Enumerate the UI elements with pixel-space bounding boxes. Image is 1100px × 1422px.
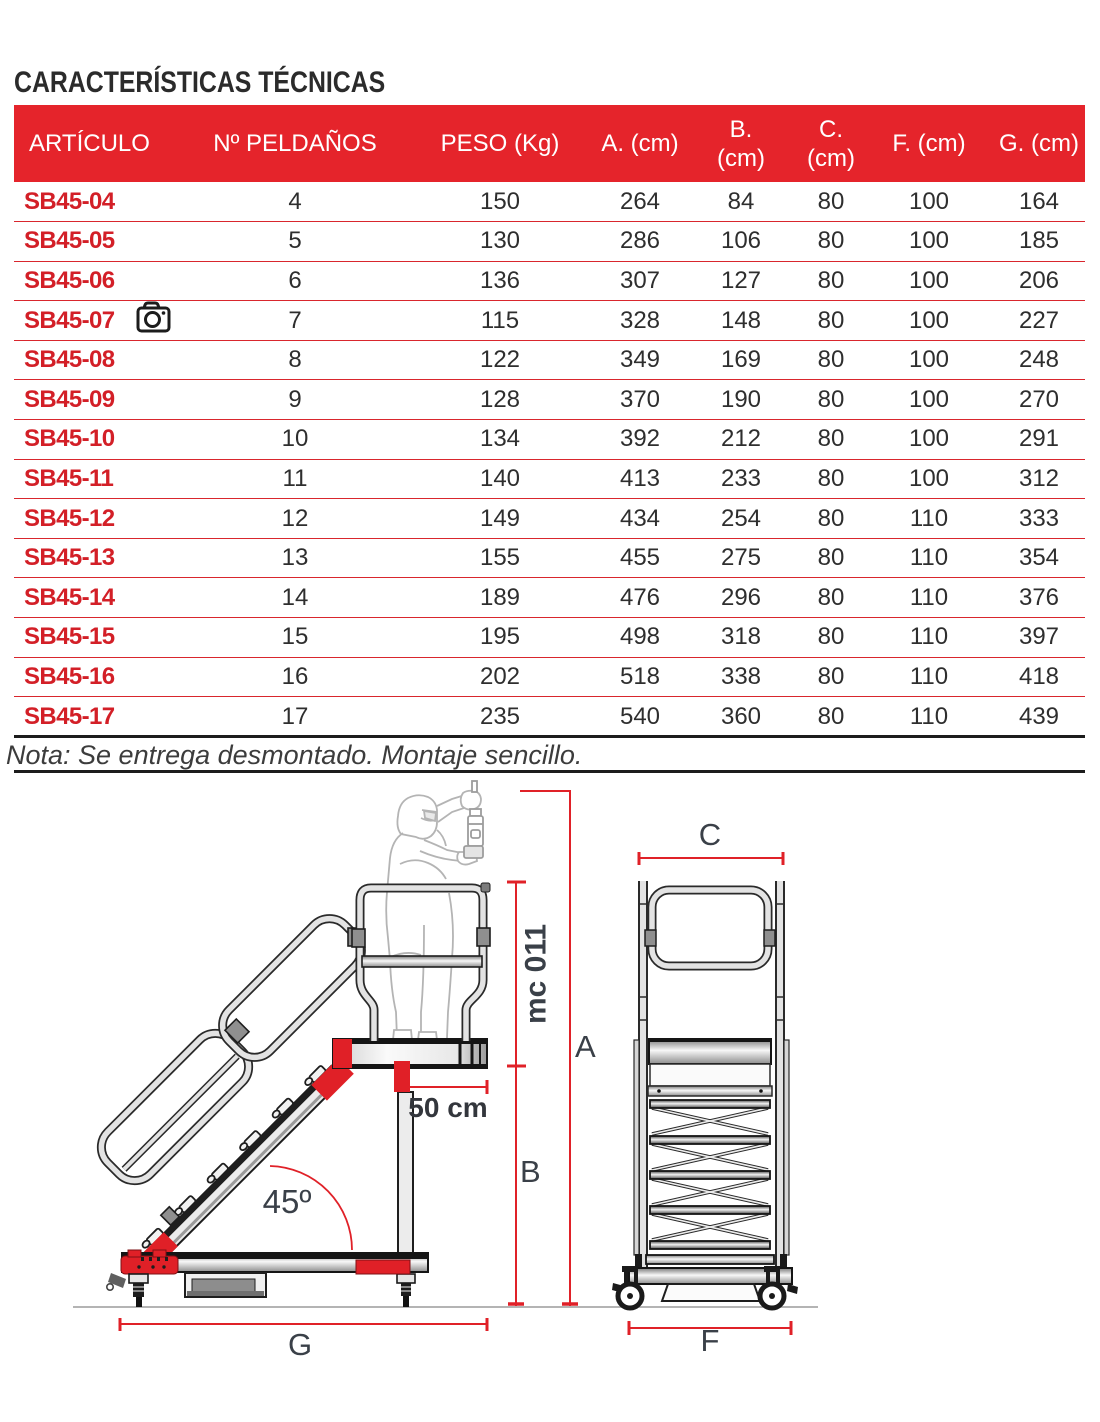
svg-text:C: C: [699, 817, 721, 852]
svg-text:B: B: [520, 1154, 541, 1189]
svg-text:A: A: [575, 1029, 596, 1064]
svg-text:45º: 45º: [263, 1183, 312, 1220]
svg-text:50 cm: 50 cm: [408, 1092, 487, 1123]
svg-text:G: G: [288, 1327, 312, 1362]
svg-text:mc 011: mc 011: [520, 924, 553, 1024]
svg-text:F: F: [701, 1323, 720, 1358]
